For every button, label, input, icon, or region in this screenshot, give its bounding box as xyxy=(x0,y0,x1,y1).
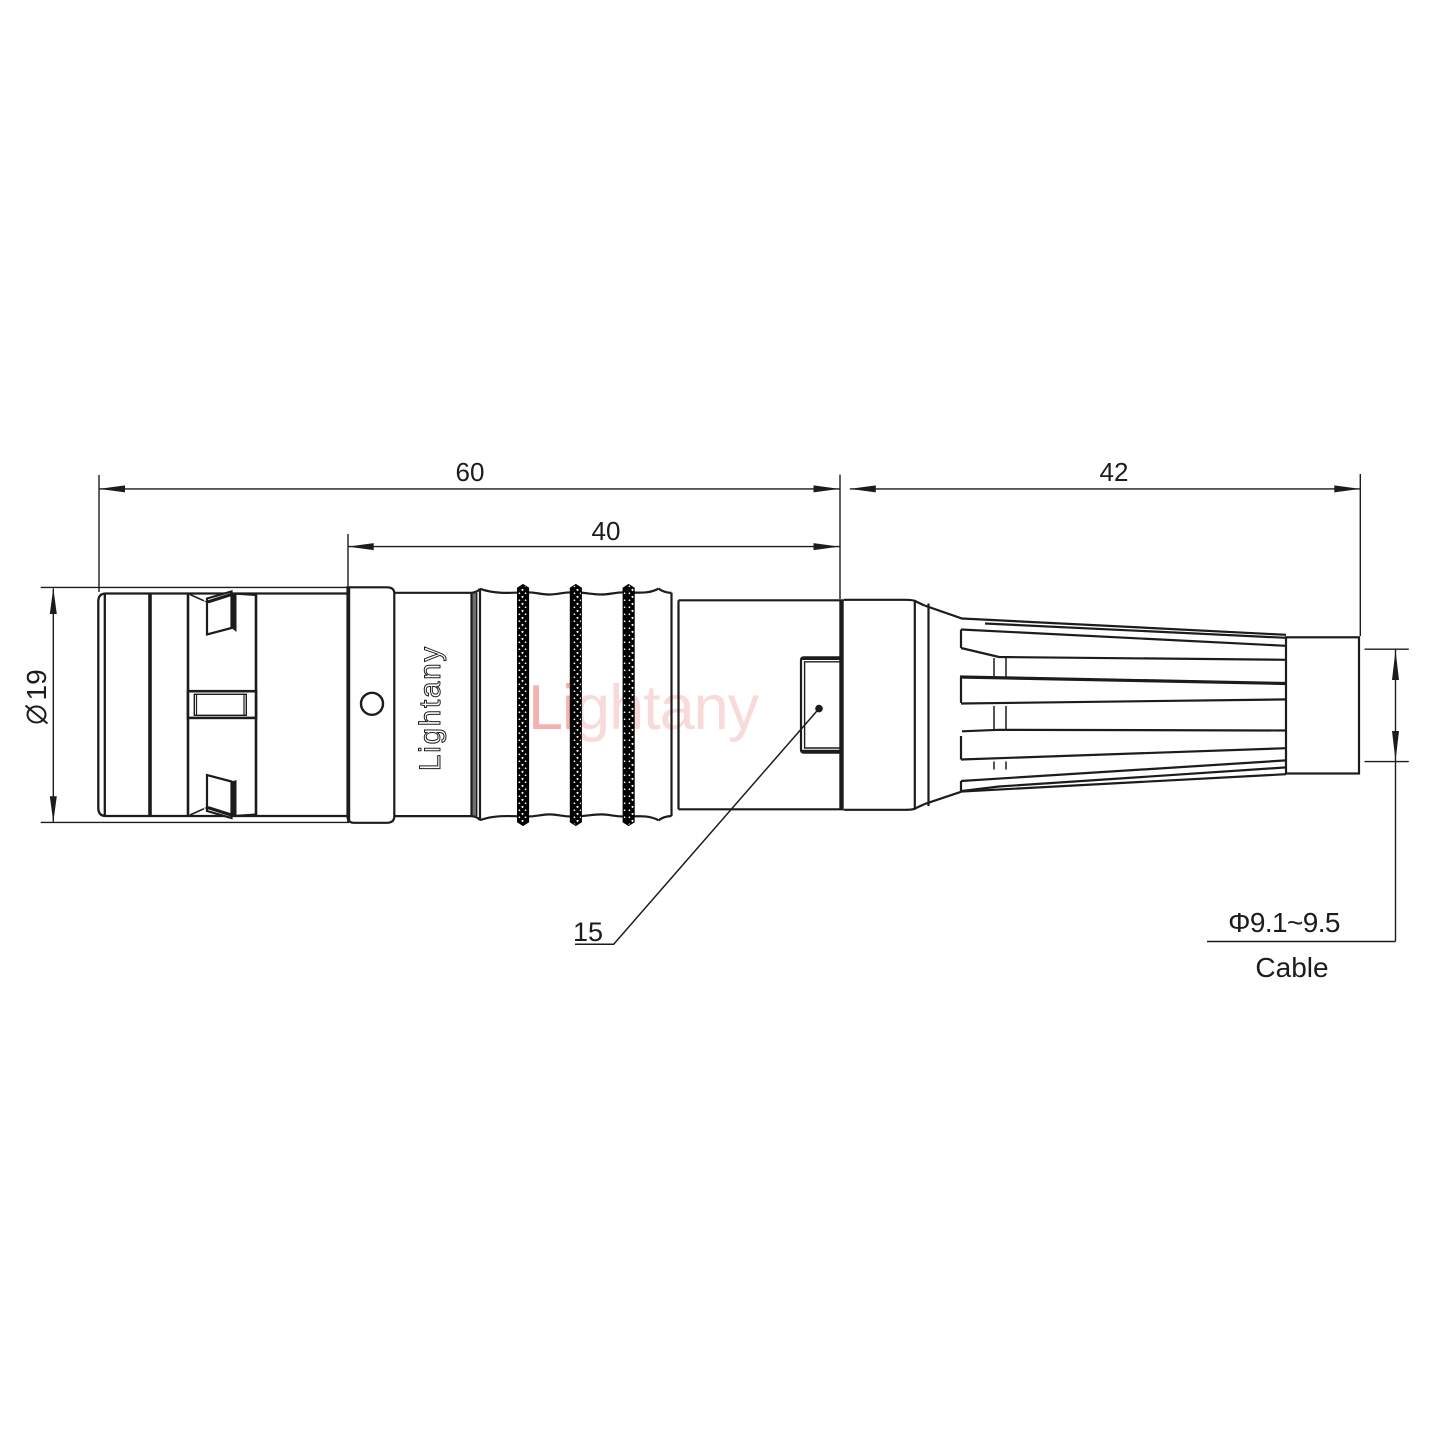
svg-text:Φ9.1~9.5: Φ9.1~9.5 xyxy=(1228,907,1340,938)
svg-text:60: 60 xyxy=(456,457,485,487)
svg-text:40: 40 xyxy=(592,516,621,546)
svg-text:19: 19 xyxy=(21,669,52,700)
svg-text:Cable: Cable xyxy=(1255,952,1328,983)
svg-text:42: 42 xyxy=(1100,457,1129,487)
svg-text:15: 15 xyxy=(573,917,603,947)
svg-text:Lightany: Lightany xyxy=(528,673,760,743)
svg-text:Lightany: Lightany xyxy=(414,645,447,771)
